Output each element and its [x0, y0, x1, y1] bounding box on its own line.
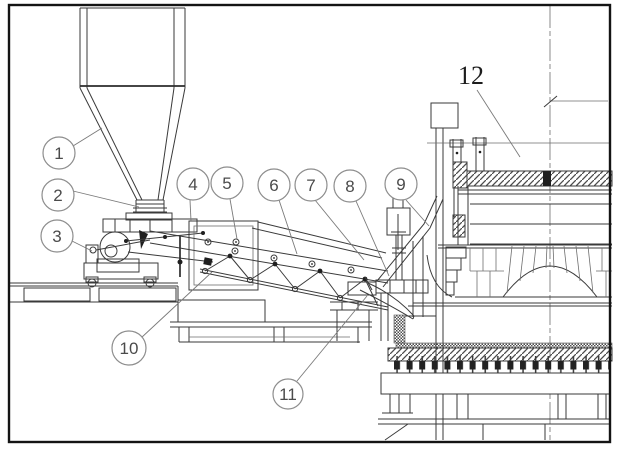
- wall-block: [453, 215, 465, 237]
- callout-6-label: 6: [269, 176, 278, 195]
- callout-8: 8: [334, 170, 389, 276]
- centerline-tick: [544, 96, 557, 107]
- callout-2-label: 2: [53, 186, 62, 205]
- feed-hopper: [80, 8, 185, 200]
- callout-4: 4: [177, 168, 209, 221]
- patent-figure-page: 1 2 3 4 5 6 7: [0, 0, 620, 450]
- grate-nozzles: [394, 356, 609, 375]
- callout-11-label: 11: [279, 385, 297, 404]
- hearth-grate: [381, 315, 612, 394]
- callout-10-label: 10: [120, 339, 139, 358]
- callout-3-label: 3: [52, 227, 61, 246]
- motor-base: [97, 259, 139, 272]
- seal-column: [394, 315, 405, 343]
- technical-diagram: 1 2 3 4 5 6 7: [0, 0, 620, 450]
- feed-trough: [150, 231, 388, 283]
- operator-platform: [10, 283, 178, 302]
- under-structure: [378, 394, 610, 440]
- furnace-mouth-curve: [427, 255, 452, 297]
- lower-arm: [128, 252, 213, 262]
- trough-bolts: [232, 248, 354, 273]
- furnace-roof: [453, 162, 612, 237]
- callout-9-label: 9: [396, 175, 405, 194]
- leader-12: [477, 90, 520, 157]
- callout-3: 3: [41, 220, 92, 252]
- roof-hatch-band: [467, 171, 612, 186]
- callout-2: 2: [42, 179, 139, 211]
- conveyor-supports: [170, 300, 378, 343]
- roof-end-block: [453, 162, 467, 188]
- callout-11: 11: [273, 296, 367, 409]
- callout-5-label: 5: [222, 174, 231, 193]
- callout-12-label: 12: [458, 61, 484, 90]
- callout-9: 9: [385, 168, 429, 226]
- callout-1: 1: [43, 128, 102, 169]
- callout-5: 5: [211, 167, 243, 239]
- callout-4-label: 4: [188, 175, 197, 194]
- callout-6: 6: [258, 169, 297, 254]
- callout-8-label: 8: [345, 177, 354, 196]
- support-beam: [381, 373, 610, 394]
- flue-cap: [431, 103, 458, 128]
- callout-7-label: 7: [306, 176, 315, 195]
- corbel-steps: [446, 247, 466, 295]
- callout-1-label: 1: [54, 144, 63, 163]
- hopper-gate-valve: [126, 200, 172, 220]
- furnace-arch: [408, 245, 612, 306]
- grate-seal-strip: [396, 343, 612, 348]
